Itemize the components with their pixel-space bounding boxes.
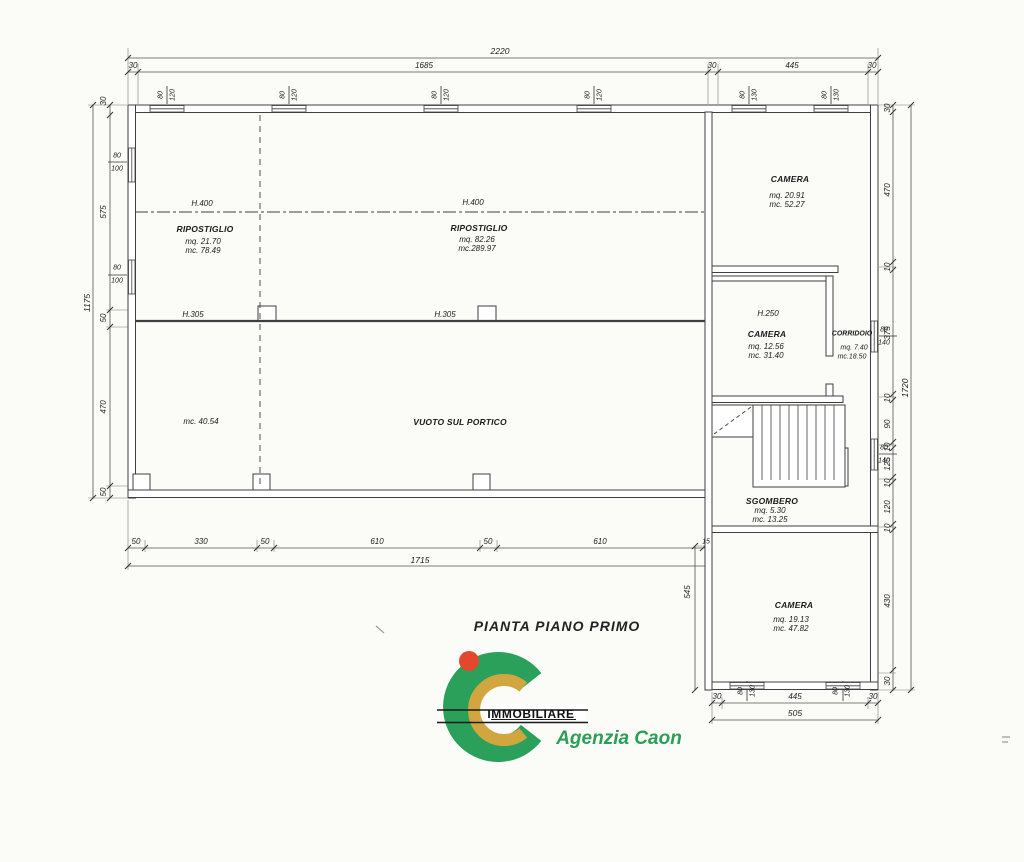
window-dim: 140 <box>878 340 890 347</box>
dim-left-seg: 470 <box>100 400 108 413</box>
dim-bottom-total: 1715 <box>411 556 430 565</box>
dim-bottom-seg: 50 <box>484 538 493 546</box>
window-dim: 120 <box>597 89 604 101</box>
window-dim: 140 <box>878 458 890 465</box>
dim-right-seg: 30 <box>884 104 892 113</box>
window-dim: 120 <box>444 89 451 101</box>
room-mq: mq. 21.70 <box>185 238 221 246</box>
dim-wing-seg: 445 <box>788 693 801 701</box>
walls <box>128 105 878 690</box>
dim-right-seg: 10 <box>884 524 892 533</box>
logo-red-dot <box>459 651 479 671</box>
room-mq: mq. 7.40 <box>840 345 867 352</box>
window-dim: 80 <box>158 91 165 99</box>
window-dim: 80 <box>833 687 840 695</box>
dim-left-total: 1175 <box>83 294 92 312</box>
dim-bottom-seg: 610 <box>370 538 383 546</box>
page-title: PIANTA PIANO PRIMO <box>474 618 641 634</box>
room-name: CORRIDOIO <box>832 331 872 338</box>
dim-bottom-seg: 330 <box>194 538 207 546</box>
dim-wing-height: 545 <box>684 585 692 598</box>
dim-top-total: 2220 <box>491 47 510 56</box>
window-dim: 130 <box>845 685 852 697</box>
dim-right-total: 1720 <box>901 379 910 398</box>
room-mq: mq. 19.13 <box>773 616 809 624</box>
dim-bottom-seg: 50 <box>261 538 270 546</box>
room-mc: mc. 78.49 <box>185 247 220 255</box>
window-dim: 80 <box>822 91 829 99</box>
room-mq: mq. 20.91 <box>769 192 805 200</box>
dim-wing-total: 505 <box>788 709 802 718</box>
dim-left-seg: 50 <box>100 314 108 323</box>
room-mq: mq. 5.30 <box>754 507 785 515</box>
floorplan-sheet: 2220 30 1685 30 445 30 80 120 80 120 80 … <box>0 0 1024 862</box>
window-dim: 80 <box>113 265 121 272</box>
window-dim: 130 <box>834 89 841 101</box>
room-height-label: H.305 <box>182 311 203 319</box>
room-mc: mc. 31.40 <box>748 352 783 360</box>
window-dim: 120 <box>292 89 299 101</box>
dim-top-seg: 445 <box>785 62 798 70</box>
window-dim: 130 <box>752 89 759 101</box>
dim-right-seg: 430 <box>884 594 892 607</box>
dim-bottom-seg: 15 <box>702 539 710 546</box>
room-mc: mc.18.50 <box>838 354 867 361</box>
dim-wing-seg: 30 <box>869 693 878 701</box>
room-name: RIPOSTIGLIO <box>451 224 508 233</box>
dim-right-seg: 470 <box>884 183 892 196</box>
window-dim: 80 <box>740 91 747 99</box>
room-height-label: H.250 <box>757 310 778 318</box>
dim-right-seg: 10 <box>884 263 892 272</box>
window-dim: 120 <box>170 89 177 101</box>
room-name: RIPOSTIGLIO <box>177 225 234 234</box>
logo-immobiliare-text: IMMOBILIARE <box>487 707 574 721</box>
room-height-label: H.400 <box>462 199 483 207</box>
room-height-label: H.305 <box>434 311 455 319</box>
room-mc: mc. 47.82 <box>773 625 808 633</box>
window-dim: 80 <box>113 153 121 160</box>
logo-agenzia-text: Agenzia Caon <box>556 728 682 750</box>
window-dim: 100 <box>111 278 123 285</box>
room-mc: mc. 40.54 <box>183 418 218 426</box>
room-mc: mc. 52.27 <box>769 201 804 209</box>
window-dim: 80 <box>280 91 287 99</box>
room-height-label: H.400 <box>191 200 212 208</box>
stairs <box>712 405 845 487</box>
room-name: CAMERA <box>771 175 810 184</box>
window-dim: 80 <box>585 91 592 99</box>
section-lines <box>135 115 705 489</box>
room-name: SGOMBERO <box>746 497 798 506</box>
window-dim: 100 <box>111 166 123 173</box>
dim-left-seg: 50 <box>100 488 108 497</box>
plan-drawing <box>0 0 1024 862</box>
dim-top-seg: 30 <box>868 62 877 70</box>
window-dim: 130 <box>750 685 757 697</box>
dim-left-seg: 575 <box>100 205 108 218</box>
dim-bottom-seg: 610 <box>593 538 606 546</box>
room-mc: mc. 13.25 <box>752 516 787 524</box>
dim-bottom-seg: 50 <box>132 538 141 546</box>
dim-top-seg: 30 <box>708 62 717 70</box>
window-dim: 80 <box>880 327 888 334</box>
pillars <box>133 306 496 490</box>
window-dim: 80 <box>432 91 439 99</box>
room-name: VUOTO SUL PORTICO <box>413 418 507 427</box>
room-mc: mc.289.97 <box>458 245 495 253</box>
dim-left-seg: 30 <box>100 97 108 106</box>
dim-right-seg: 10 <box>884 394 892 403</box>
dim-right-seg: 120 <box>884 500 892 513</box>
dim-wing-seg: 30 <box>713 693 722 701</box>
room-mq: mq. 82.26 <box>459 236 495 244</box>
room-mq: mq. 12.56 <box>748 343 784 351</box>
dim-top-seg: 30 <box>129 62 138 70</box>
window-dim: 80 <box>738 687 745 695</box>
room-name: CAMERA <box>775 601 814 610</box>
dim-top-seg: 1685 <box>415 62 433 70</box>
room-name: CAMERA <box>748 330 787 339</box>
dim-right-seg: 30 <box>884 677 892 686</box>
dim-right-seg: 90 <box>884 420 892 429</box>
window-dim: 80 <box>880 445 888 452</box>
dim-right-seg: 10 <box>884 479 892 488</box>
